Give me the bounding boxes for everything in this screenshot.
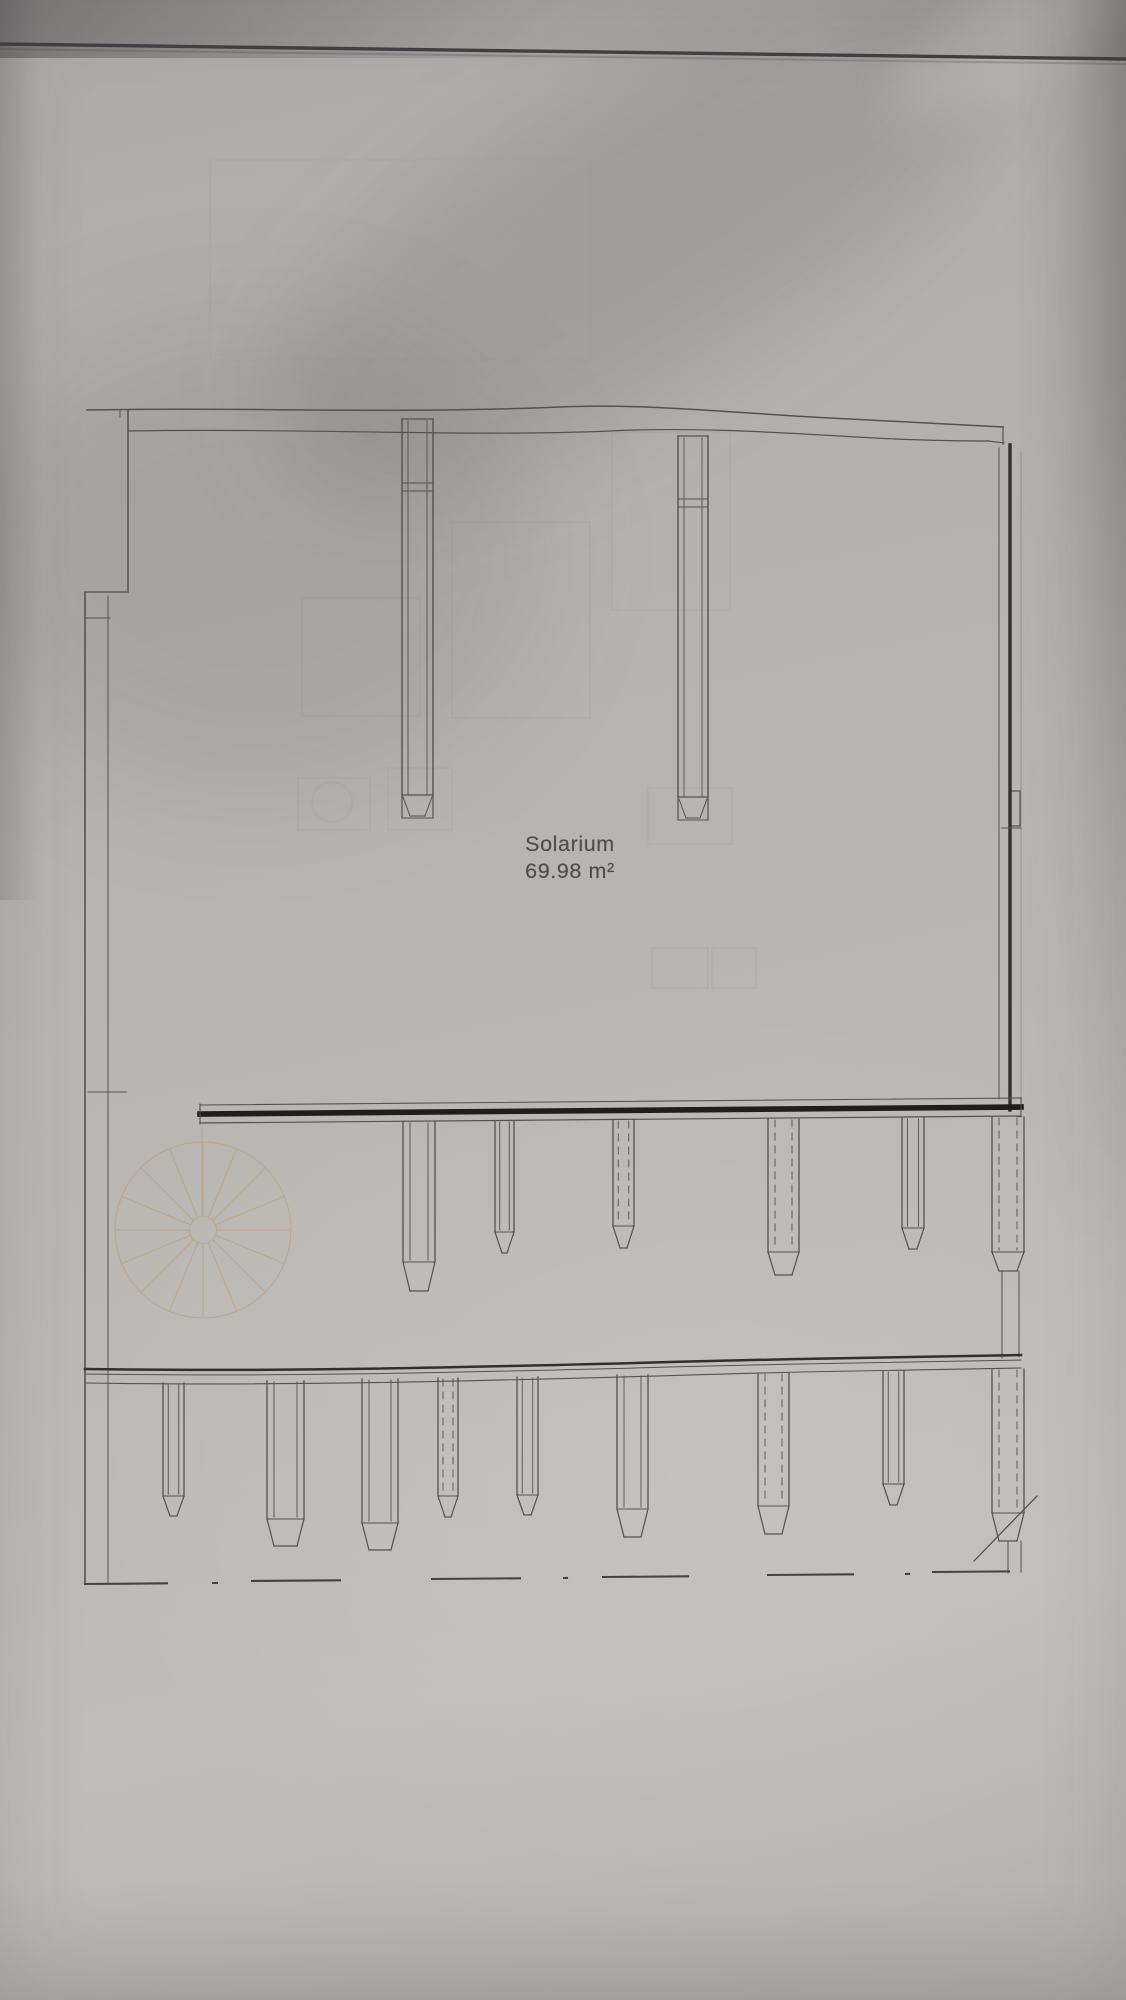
room-label: Solarium 69.98 m² xyxy=(450,831,690,885)
pergola-posts-row-2 xyxy=(163,1369,1024,1550)
dashed-boundary-line xyxy=(85,1571,1009,1584)
floor-plan-drawing xyxy=(0,0,1126,2000)
beam-joint xyxy=(678,499,708,507)
pergola-post xyxy=(163,1383,184,1516)
break-mark-diagonal xyxy=(974,1496,1037,1561)
beam-joint xyxy=(402,483,433,491)
terrace-edge-dark xyxy=(200,1107,1021,1114)
room-name: Solarium xyxy=(450,831,690,858)
pergola-post xyxy=(495,1121,514,1253)
solarium-room-outline xyxy=(85,406,1021,1583)
roof-beam-right xyxy=(678,436,708,820)
break-line-lower xyxy=(128,430,988,441)
break-line-upper xyxy=(87,406,1003,427)
pergola-post xyxy=(438,1378,458,1517)
floor-plan-photo: Solarium 69.98 m² xyxy=(0,0,1126,2000)
pergola-posts-row-1 xyxy=(403,1117,1024,1291)
roof-beam-left xyxy=(402,419,433,818)
pergola-post xyxy=(883,1371,904,1505)
right-wall-mid xyxy=(1002,1271,1019,1358)
lower-terrace-edge xyxy=(85,1355,1021,1384)
pergola-post xyxy=(267,1381,304,1546)
pergola-post xyxy=(992,1117,1024,1271)
pergola-post xyxy=(403,1122,435,1291)
room-area: 69.98 m² xyxy=(450,858,690,885)
pergola-post xyxy=(362,1379,398,1550)
pergola-post xyxy=(517,1377,538,1515)
pergola-post xyxy=(617,1375,648,1537)
spiral-staircase xyxy=(115,1126,291,1318)
pergola-post xyxy=(613,1120,634,1248)
right-wall-lower xyxy=(974,1496,1037,1573)
right-wall-pier xyxy=(1012,791,1020,826)
terrace-edge-band xyxy=(200,1097,1021,1124)
pergola-post xyxy=(768,1119,799,1275)
stair-treads xyxy=(116,1143,290,1317)
pergola-post xyxy=(758,1373,789,1534)
pergola-post xyxy=(902,1118,924,1249)
